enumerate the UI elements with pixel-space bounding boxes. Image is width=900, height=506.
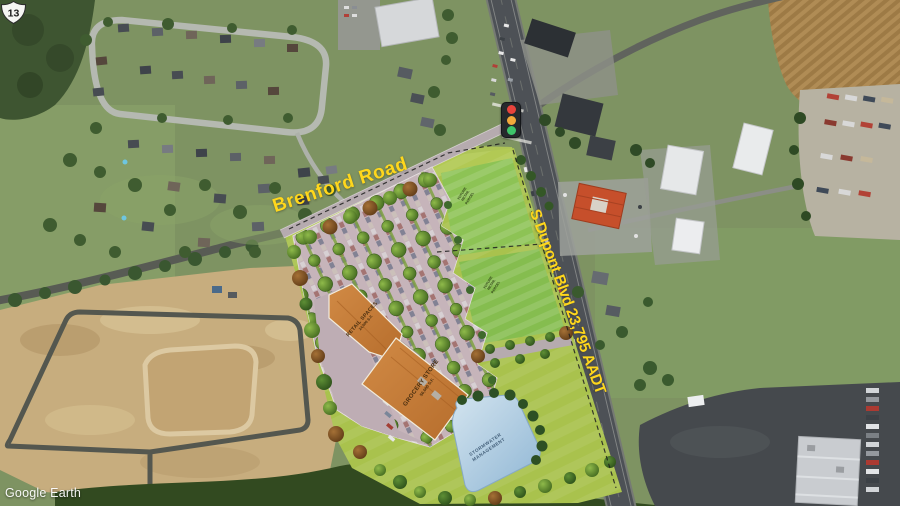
- route-shield-number: 13: [8, 8, 20, 20]
- satellite-basemap: [0, 0, 900, 506]
- map-viewport: Brenford Road S Dupont Blvd 23,795 AADT …: [0, 0, 900, 506]
- us-route-13-shield-icon: 13: [0, 0, 27, 25]
- traffic-light-green: [507, 126, 516, 135]
- google-earth-watermark: Google Earth: [5, 486, 81, 500]
- traffic-light-red: [507, 105, 516, 114]
- truck-yard: [789, 84, 900, 240]
- construction-site: [0, 265, 338, 504]
- traffic-light-icon: [501, 102, 521, 138]
- traffic-light-amber: [507, 116, 516, 125]
